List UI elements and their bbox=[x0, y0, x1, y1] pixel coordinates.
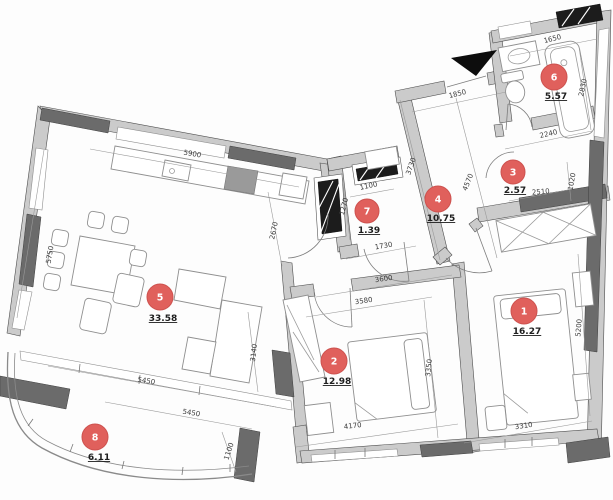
room-5-label: 5 33.58 bbox=[147, 284, 177, 324]
room-1-area: 16.27 bbox=[513, 327, 541, 337]
room-5-number: 5 bbox=[157, 293, 164, 304]
room-3-number: 3 bbox=[510, 168, 517, 179]
dim-label: 2240 bbox=[539, 128, 558, 140]
bathroom-sink bbox=[498, 41, 540, 72]
dim-label: 1020 bbox=[567, 172, 578, 191]
dim-label: 3310 bbox=[514, 421, 533, 431]
room-7-label: 7 1.39 bbox=[355, 199, 380, 236]
room-4-label: 4 10.75 bbox=[425, 186, 455, 224]
floor-plan-drawing: 1650 2830 2240 2510 1020 4570 1850 3730 … bbox=[0, 0, 613, 500]
room-1-number: 1 bbox=[521, 307, 528, 318]
dim-label: 2510 bbox=[532, 187, 550, 197]
room-4-number: 4 bbox=[435, 195, 442, 206]
floor-plan-page: 1650 2830 2240 2510 1020 4570 1850 3730 … bbox=[0, 0, 613, 500]
room-4-area: 10.75 bbox=[427, 214, 455, 224]
dim-label: 4170 bbox=[343, 421, 362, 431]
dim-label: 3580 bbox=[354, 296, 373, 306]
dim-label: 5900 bbox=[183, 149, 202, 160]
room-6-area: 5.57 bbox=[545, 92, 567, 102]
room-2-area: 12.98 bbox=[323, 377, 351, 387]
desk-room2 bbox=[304, 403, 333, 436]
room-8-number: 8 bbox=[92, 433, 99, 444]
dim-label: 5450 bbox=[137, 376, 156, 387]
dim-label: 5200 bbox=[574, 319, 584, 337]
room-6-number: 6 bbox=[551, 73, 558, 84]
room-7-area: 1.39 bbox=[358, 226, 380, 236]
room-8-area: 6.11 bbox=[88, 453, 110, 463]
room-2-number: 2 bbox=[331, 357, 338, 368]
room-5-area: 33.58 bbox=[149, 314, 177, 324]
dim-label: 2670 bbox=[268, 221, 280, 240]
nightstand-room1 bbox=[572, 271, 593, 307]
dim-label: 1850 bbox=[448, 88, 467, 100]
dim-label: 4570 bbox=[461, 172, 475, 192]
dim-label: 3140 bbox=[249, 343, 259, 362]
room-3-label: 3 2.57 bbox=[501, 160, 526, 196]
room-3-area: 2.57 bbox=[504, 186, 526, 196]
dim-label: 1100 bbox=[223, 442, 236, 461]
room-2-label: 2 12.98 bbox=[321, 348, 351, 387]
room-7-number: 7 bbox=[364, 207, 371, 218]
chair-room1 bbox=[485, 405, 507, 431]
room-6-label: 6 5.57 bbox=[541, 64, 567, 102]
dim-label: 3350 bbox=[424, 359, 434, 378]
dim-label: 1730 bbox=[374, 241, 393, 252]
